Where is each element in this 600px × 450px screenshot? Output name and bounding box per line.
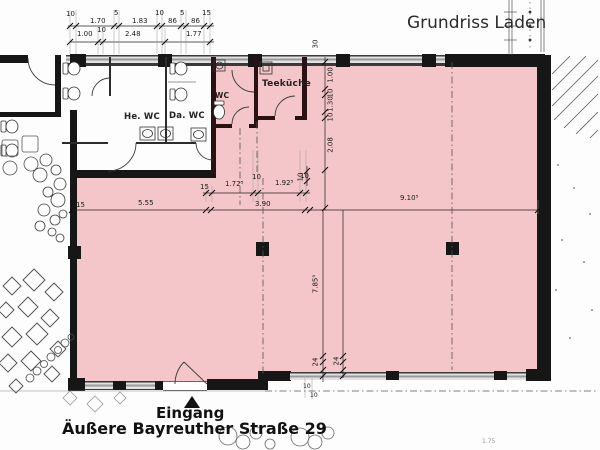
- dim-label: 10: [310, 393, 318, 399]
- dim-label: 86: [191, 18, 200, 25]
- dim-label: 1.83: [132, 18, 148, 25]
- party-wall-hatch: [552, 56, 598, 138]
- dim-label: 1.30: [328, 96, 335, 112]
- neighbor-furniture: [2, 136, 38, 175]
- dim-label: 24: [313, 358, 320, 367]
- dim-label: 15: [76, 202, 85, 209]
- plan-title: Grundriss Laden: [407, 15, 546, 32]
- dim-label: 9.10⁵: [400, 195, 418, 202]
- dim-label: 1.77: [186, 31, 202, 38]
- dim-label: 1.70: [90, 18, 106, 25]
- dim-label: 30: [313, 40, 320, 49]
- dim-label: 3.90: [255, 201, 271, 208]
- dim-label: 10: [300, 173, 309, 180]
- paving-faint: [63, 391, 126, 412]
- door-arcs: [28, 58, 295, 384]
- room-label-he-wc: He. WC: [124, 113, 160, 122]
- dim-label: 1.00: [77, 31, 93, 38]
- sink-fixtures: [140, 60, 272, 141]
- dim-label: 5: [180, 10, 184, 17]
- dim-label: 10: [252, 174, 261, 181]
- dim-label: 1.75: [482, 439, 495, 445]
- plan-linework: [0, 0, 600, 450]
- dim-label: 1.00: [328, 67, 335, 83]
- dim-label: 5: [114, 10, 118, 17]
- floor-plan: Grundriss Laden He. WC Da. WC WC Teeküch…: [0, 0, 600, 450]
- dim-label: 1.72⁵: [225, 181, 243, 188]
- dim-label: 15: [200, 184, 209, 191]
- dim-label: 15: [202, 10, 211, 17]
- dim-label: 10: [328, 113, 335, 122]
- address-label: Äußere Bayreuther Straße 29: [62, 421, 327, 437]
- hatch-specks: [555, 164, 593, 339]
- dim-label: 2.08: [328, 137, 335, 153]
- dim-label: 2.48: [125, 31, 141, 38]
- dim-label: 5.55: [138, 200, 154, 207]
- dim-label: 10: [66, 11, 75, 18]
- paving-diamonds: [0, 269, 66, 393]
- dim-label: 10: [155, 10, 164, 17]
- dim-label: 10: [303, 384, 311, 390]
- room-label-wc: WC: [215, 92, 229, 100]
- dim-label: 10: [97, 27, 106, 34]
- dim-label: 24: [334, 357, 341, 366]
- room-label-teekueche: Teeküche: [262, 80, 311, 89]
- plant-drawing: [33, 154, 67, 242]
- dim-label: 7.85⁵: [313, 275, 320, 293]
- room-label-da-wc: Da. WC: [169, 112, 205, 121]
- dim-label: 1.92⁵: [275, 180, 293, 187]
- grid-lines: [240, 62, 598, 391]
- dim-label: 86: [168, 18, 177, 25]
